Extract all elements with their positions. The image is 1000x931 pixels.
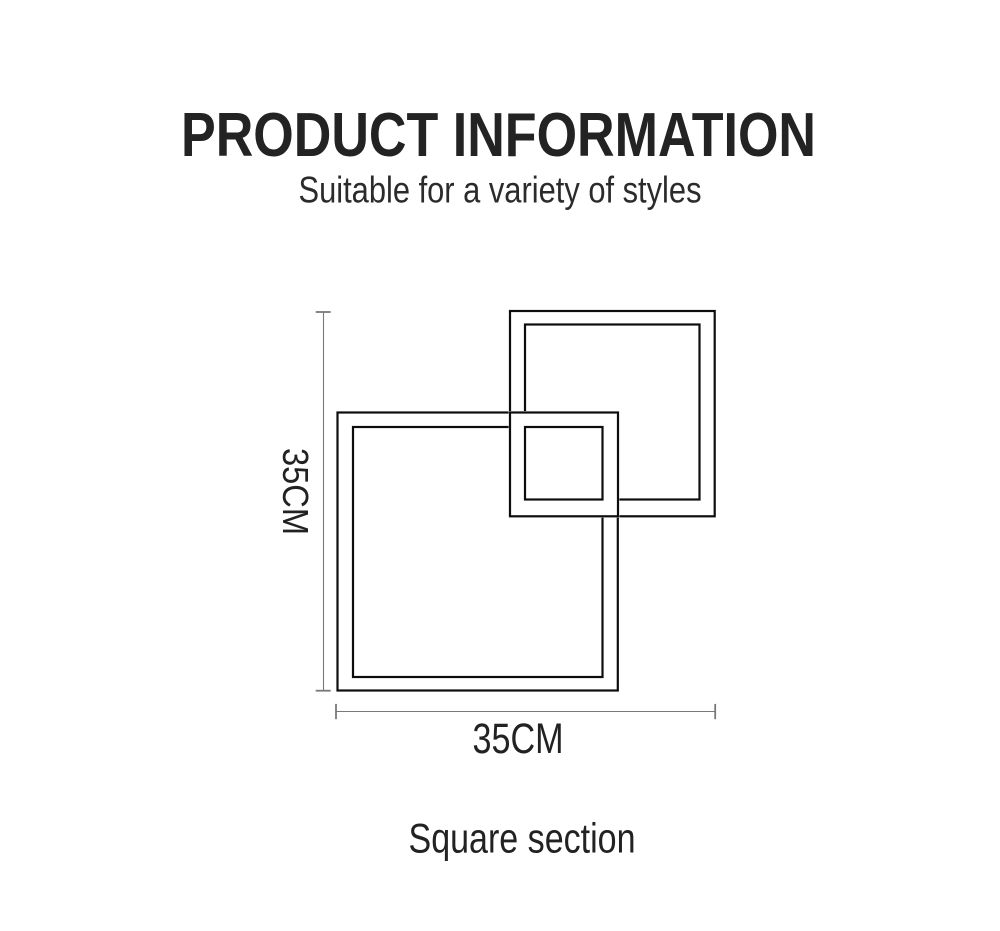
svg-text:Square section: Square section [409,815,636,862]
svg-text:35CM: 35CM [275,448,316,535]
svg-text:Suitable for a variety of styl: Suitable for a variety of styles [299,168,702,210]
svg-text:35CM: 35CM [473,715,564,763]
svg-text:PRODUCT INFORMATION: PRODUCT INFORMATION [181,100,816,170]
